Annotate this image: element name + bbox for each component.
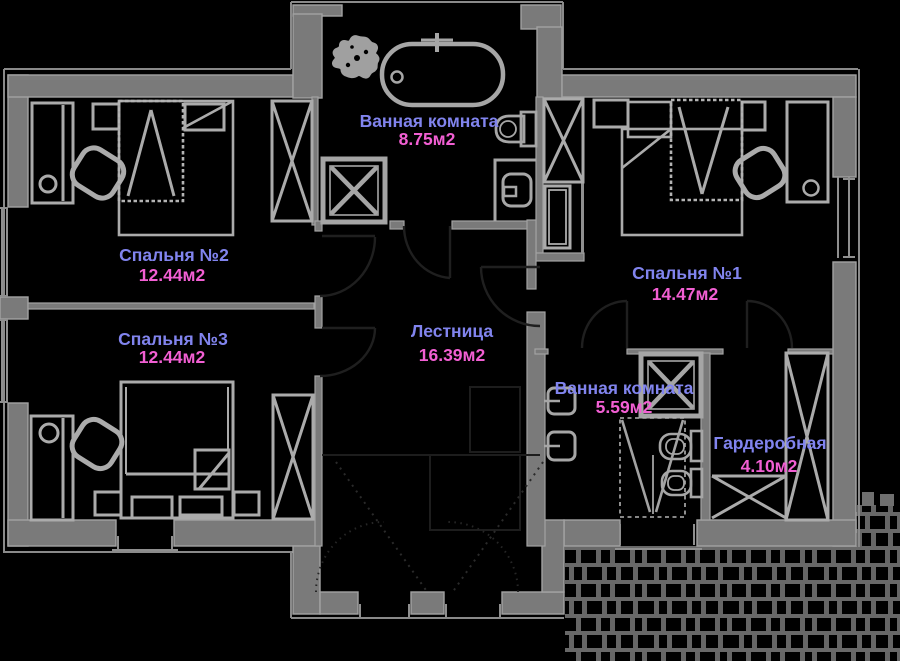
- svg-text:Ванная комната: Ванная комната: [555, 378, 694, 398]
- svg-text:14.47м2: 14.47м2: [652, 284, 719, 304]
- svg-text:Лестница: Лестница: [411, 321, 493, 341]
- svg-text:Спальня №2: Спальня №2: [119, 245, 229, 265]
- svg-text:5.59м2: 5.59м2: [596, 397, 653, 417]
- svg-text:Спальня №1: Спальня №1: [632, 263, 742, 283]
- svg-text:Спальня №3: Спальня №3: [118, 329, 228, 349]
- svg-text:16.39м2: 16.39м2: [419, 345, 486, 365]
- svg-text:Гардеробная: Гардеробная: [713, 433, 826, 453]
- svg-text:12.44м2: 12.44м2: [139, 347, 206, 367]
- svg-text:4.10м2: 4.10м2: [741, 456, 798, 476]
- svg-text:12.44м2: 12.44м2: [139, 265, 206, 285]
- svg-text:8.75м2: 8.75м2: [399, 129, 456, 149]
- svg-text:Ванная комната: Ванная комната: [360, 111, 499, 131]
